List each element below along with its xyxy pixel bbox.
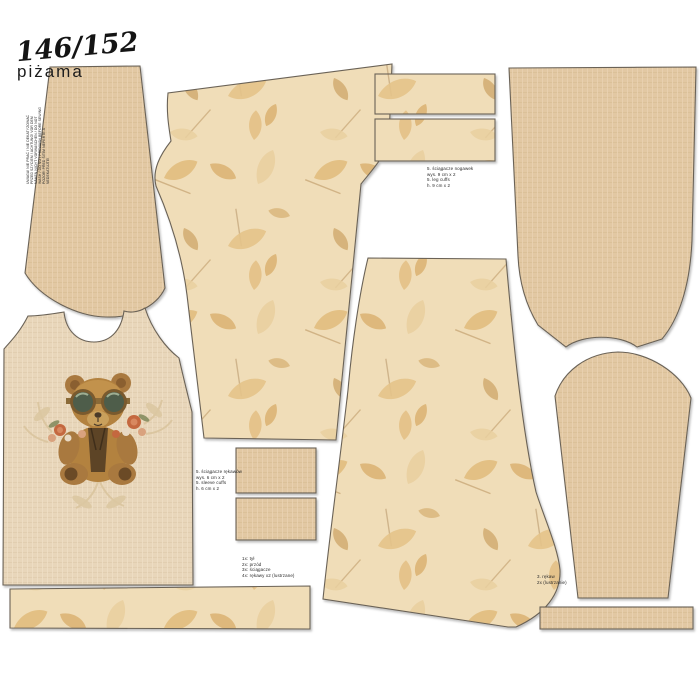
piece-sleeve-cuff-2	[236, 498, 316, 540]
garment-label: piżama	[17, 62, 137, 82]
sleeve-cuffs-label: 5. ściągacze rękawów wys. 6 cm x 2 5. sl…	[196, 469, 258, 491]
care-instructions-text: UWAGA! NIE PRAĆ / NIE DEKATYZOWAĆ PRZED …	[27, 92, 50, 184]
fabric-panel: 146/152 piżama UWAGA! NIE PRAĆ / NIE DEK…	[0, 0, 700, 700]
sleeve-note-label: 3. rękaw 2x (lustrzanie)	[537, 574, 582, 585]
piece-sleeve-lower-right	[555, 352, 691, 598]
pattern-pieces-canvas	[0, 0, 700, 700]
leg-cuffs-label: 5. ściągacze nogawek wys. 9 cm x 2 5. le…	[427, 166, 497, 188]
piece-waistband-strip-leaf	[10, 586, 310, 629]
pieces-legend: 1x: tył 2x: przód 3x: ściągacze 4x: ręka…	[242, 556, 322, 578]
piece-leg-cuff-2	[375, 119, 495, 161]
piece-binding-strip-plain	[540, 607, 693, 629]
piece-back-bodice	[509, 67, 696, 347]
piece-leg-cuff-1	[375, 74, 495, 114]
piece-pants-leg-2	[323, 258, 560, 627]
